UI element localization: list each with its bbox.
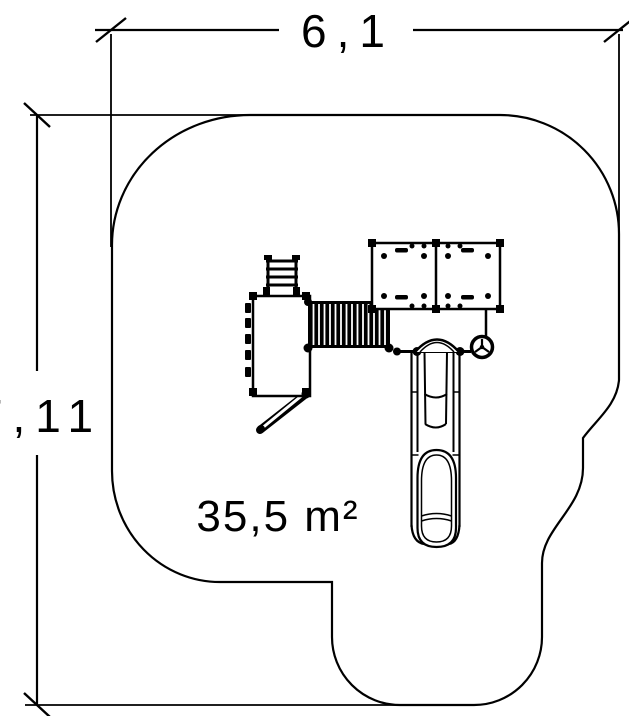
plan-drawing: 6,1 7,11 35,5 m²: [0, 0, 629, 716]
tower-deck: [253, 296, 310, 396]
main-platform: [368, 239, 504, 313]
width-dimension-label: 6,1: [301, 5, 395, 57]
drawing-background: [0, 0, 629, 716]
steering-wheel-hub: [480, 345, 484, 349]
playground-plan-svg: 6,1 7,11 35,5 m²: [0, 0, 629, 716]
height-dimension-label: 7,11: [0, 390, 103, 442]
area-label: 35,5 m²: [196, 492, 359, 541]
